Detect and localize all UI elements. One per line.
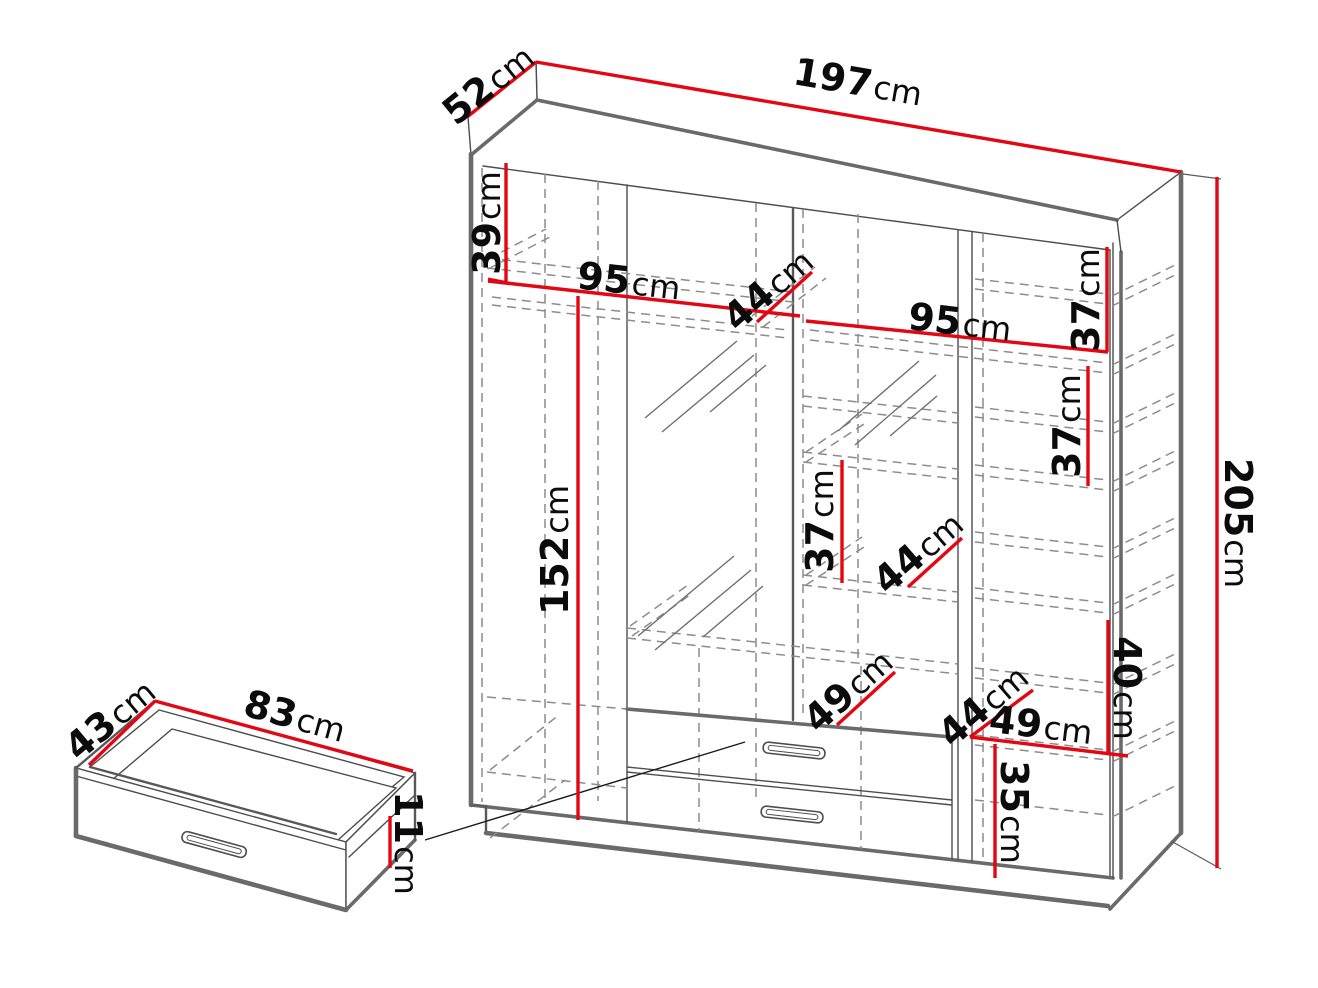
dim-top-shelf-height-label: 39cm: [465, 171, 509, 275]
dim-detail-height-label: 11cm: [386, 791, 430, 895]
wardrobe-drawers: [627, 709, 952, 859]
dim-right-section-width-label: 95cm: [906, 294, 1014, 349]
dimension-diagram: 52cm 197cm 39cm 95cm 44cm 95cm 37cm 37cm…: [0, 0, 1318, 988]
drawer-handle-bottom: [761, 806, 824, 824]
dim-drawer-zone-height-label: 35cm: [992, 760, 1036, 864]
dim-middle-shelf-gap-label: 37cm: [798, 469, 842, 573]
dim-left-section-width-label: 95cm: [575, 253, 683, 308]
dim-width-label: 197cm: [790, 49, 926, 114]
dim-right-shelf-gap1-label: 37cm: [1064, 248, 1108, 352]
dim-middle-shelf-depth-label: 44cm: [864, 501, 971, 602]
dim-bottom-shelf-width-label: 49cm: [987, 697, 1095, 753]
dim-height-label: 205cm: [1216, 458, 1260, 588]
drawer-detail: [76, 701, 415, 910]
dim-hanging-height-label: 152cm: [533, 485, 577, 615]
dim-right-shelf-gap2-label: 37cm: [1045, 374, 1089, 478]
mirror-hatches: [638, 341, 937, 650]
dim-top-shelf-depth-label: 44cm: [714, 238, 821, 339]
dim-right-bottom-gap-label: 40cm: [1105, 636, 1149, 740]
dim-drawer-depth-label: 49cm: [795, 639, 901, 741]
wardrobe-dimension-drawing: 52cm 197cm 39cm 95cm 44cm 95cm 37cm 37cm…: [0, 0, 1318, 988]
drawer-handle-top: [763, 742, 826, 760]
